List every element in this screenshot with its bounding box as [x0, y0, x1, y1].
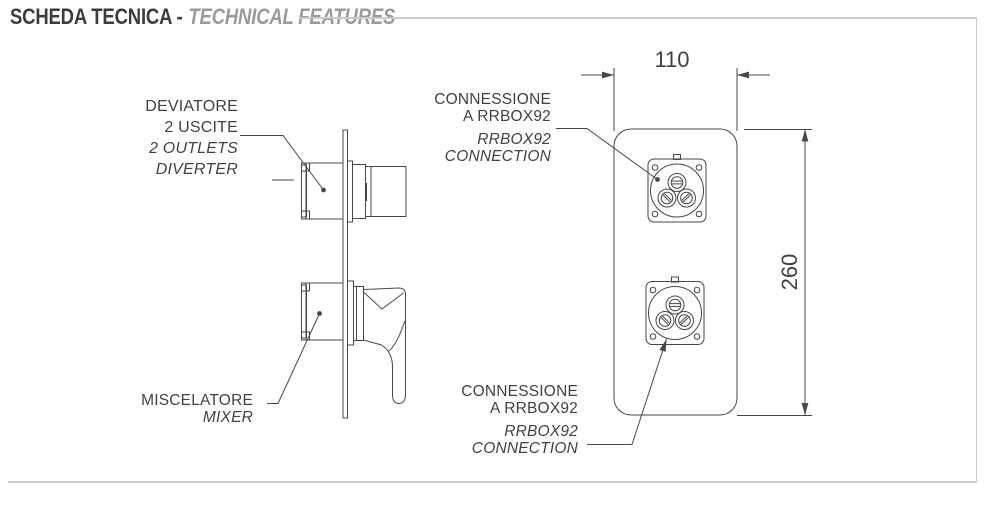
mixer-lever-handle [364, 288, 406, 404]
arrowhead [602, 72, 614, 79]
leader-line [267, 314, 320, 404]
label-diverter: DEVIATORE 2 USCITE 2 OUTLETS DIVERTER [118, 96, 238, 180]
label-line: 2 USCITE [118, 117, 238, 138]
label-line: RRBOX92 [448, 424, 578, 441]
dimension-width: 110 [581, 47, 770, 131]
rrbox-connection-bottom [646, 277, 704, 345]
mixer-escutcheon [354, 287, 364, 341]
label-line: MIXER [133, 410, 253, 427]
dimension-width-value: 110 [654, 47, 689, 72]
diverter-adapter [353, 165, 366, 219]
leader-diverter [240, 136, 326, 193]
label-line: MISCELATORE [133, 393, 253, 410]
technical-sheet: SCHEDA TECNICA -TECHNICAL FEATURES [0, 0, 1000, 505]
label-connection-bottom: CONNESSIONE A RRBOX92 RRBOX92 CONNECTION [448, 384, 578, 457]
side-view [240, 130, 406, 418]
wall-plate-side [343, 130, 348, 418]
label-mixer: MISCELATORE MIXER [133, 393, 253, 426]
label-line: DEVIATORE [118, 96, 238, 117]
leader-line [556, 129, 658, 180]
dimension-height: 260 [737, 129, 812, 416]
rrbox-connection-top [648, 155, 706, 223]
leader-mixer [267, 311, 322, 403]
label-line: DIVERTER [118, 159, 238, 180]
label-line: CONNECTION [421, 149, 551, 166]
leader-connection-bottom [587, 339, 667, 445]
arrowhead [802, 130, 809, 142]
arrowhead [737, 72, 749, 79]
mixer-side [302, 281, 406, 404]
label-line: A RRBOX92 [448, 401, 578, 418]
label-line: A RRBOX92 [421, 109, 551, 126]
label-connection-top: CONNESSIONE A RRBOX92 RRBOX92 CONNECTION [421, 92, 551, 165]
arrowhead [802, 403, 809, 415]
leader-dot [317, 311, 322, 316]
diverter-flange [348, 161, 353, 222]
leader-connection-top [556, 129, 660, 182]
label-line: CONNESSIONE [421, 92, 551, 109]
wall-plate-front [614, 129, 737, 415]
leader-arrowhead [660, 339, 667, 352]
mixer-flange [348, 281, 354, 345]
leader-line [587, 339, 667, 445]
leader-dot [655, 177, 660, 182]
label-line: CONNECTION [448, 441, 578, 458]
dimension-height-value: 260 [777, 254, 802, 291]
diverter-side [302, 161, 407, 222]
front-view: 110 260 [556, 47, 812, 445]
label-line: CONNESSIONE [448, 384, 578, 401]
handle-ridge-line [364, 293, 404, 310]
label-line: 2 OUTLETS [118, 138, 238, 159]
leader-dot [321, 188, 326, 193]
diverter-knob [371, 167, 406, 217]
handle-bend-line [388, 321, 405, 352]
label-line: RRBOX92 [421, 132, 551, 149]
